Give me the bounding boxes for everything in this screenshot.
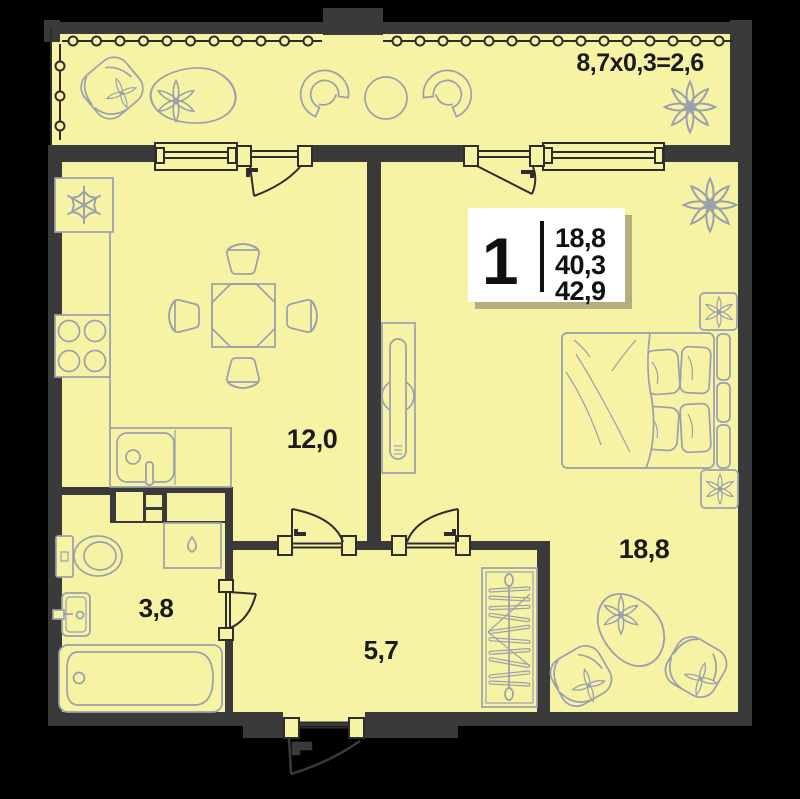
duct-inset xyxy=(146,510,162,521)
bedroom-area-label: 18,8 xyxy=(619,534,670,564)
stove-icon xyxy=(55,315,110,377)
room-count: 1 xyxy=(482,224,518,298)
floorplan-canvas: 8,7x0,3=2,6 xyxy=(0,0,800,799)
balcony-pillar-right xyxy=(730,20,752,145)
headboard xyxy=(717,334,730,468)
bed-icon xyxy=(562,333,730,468)
hallway-area-label: 5,7 xyxy=(364,635,399,665)
wardrobe-icon xyxy=(482,568,537,707)
duct-inset xyxy=(167,493,225,521)
balcony-top-wall xyxy=(48,22,752,34)
window-icon xyxy=(155,143,237,170)
balcony: 8,7x0,3=2,6 xyxy=(44,8,752,145)
hallway-top-wall xyxy=(225,541,550,550)
nightstand-icon xyxy=(700,293,737,330)
duct-inset xyxy=(146,495,162,507)
hallway-bedroom-wall xyxy=(537,541,550,712)
duct-inset xyxy=(116,492,143,521)
kitchen-sink-icon xyxy=(110,428,231,487)
door-swing-icon xyxy=(289,738,360,774)
unit-info-card: 1 18,8 40,3 42,9 xyxy=(468,208,632,309)
floorplan-svg: 8,7x0,3=2,6 xyxy=(0,0,800,799)
bedroom-window xyxy=(543,143,664,170)
balcony-dimension-label: 8,7x0,3=2,6 xyxy=(576,49,703,77)
bathtub-icon xyxy=(59,645,222,712)
nightstand-icon xyxy=(701,470,738,508)
toilet-icon xyxy=(56,536,122,577)
kitchen-window xyxy=(155,143,237,170)
round-table-icon xyxy=(365,77,407,119)
card-divider xyxy=(540,221,544,292)
washing-machine-icon xyxy=(164,523,221,568)
entrance-door xyxy=(243,712,458,774)
balcony-pillar xyxy=(323,8,383,35)
kitchen-area-label: 12,0 xyxy=(287,424,338,454)
window-icon xyxy=(543,143,664,170)
bathroom-area-label: 3,8 xyxy=(139,593,174,623)
living-area-value: 18,8 xyxy=(555,223,606,253)
bathroom-top-wall xyxy=(62,487,110,495)
fridge-icon xyxy=(55,178,113,232)
total-area-value: 42,9 xyxy=(555,276,606,306)
tv-stand-icon xyxy=(382,323,415,473)
